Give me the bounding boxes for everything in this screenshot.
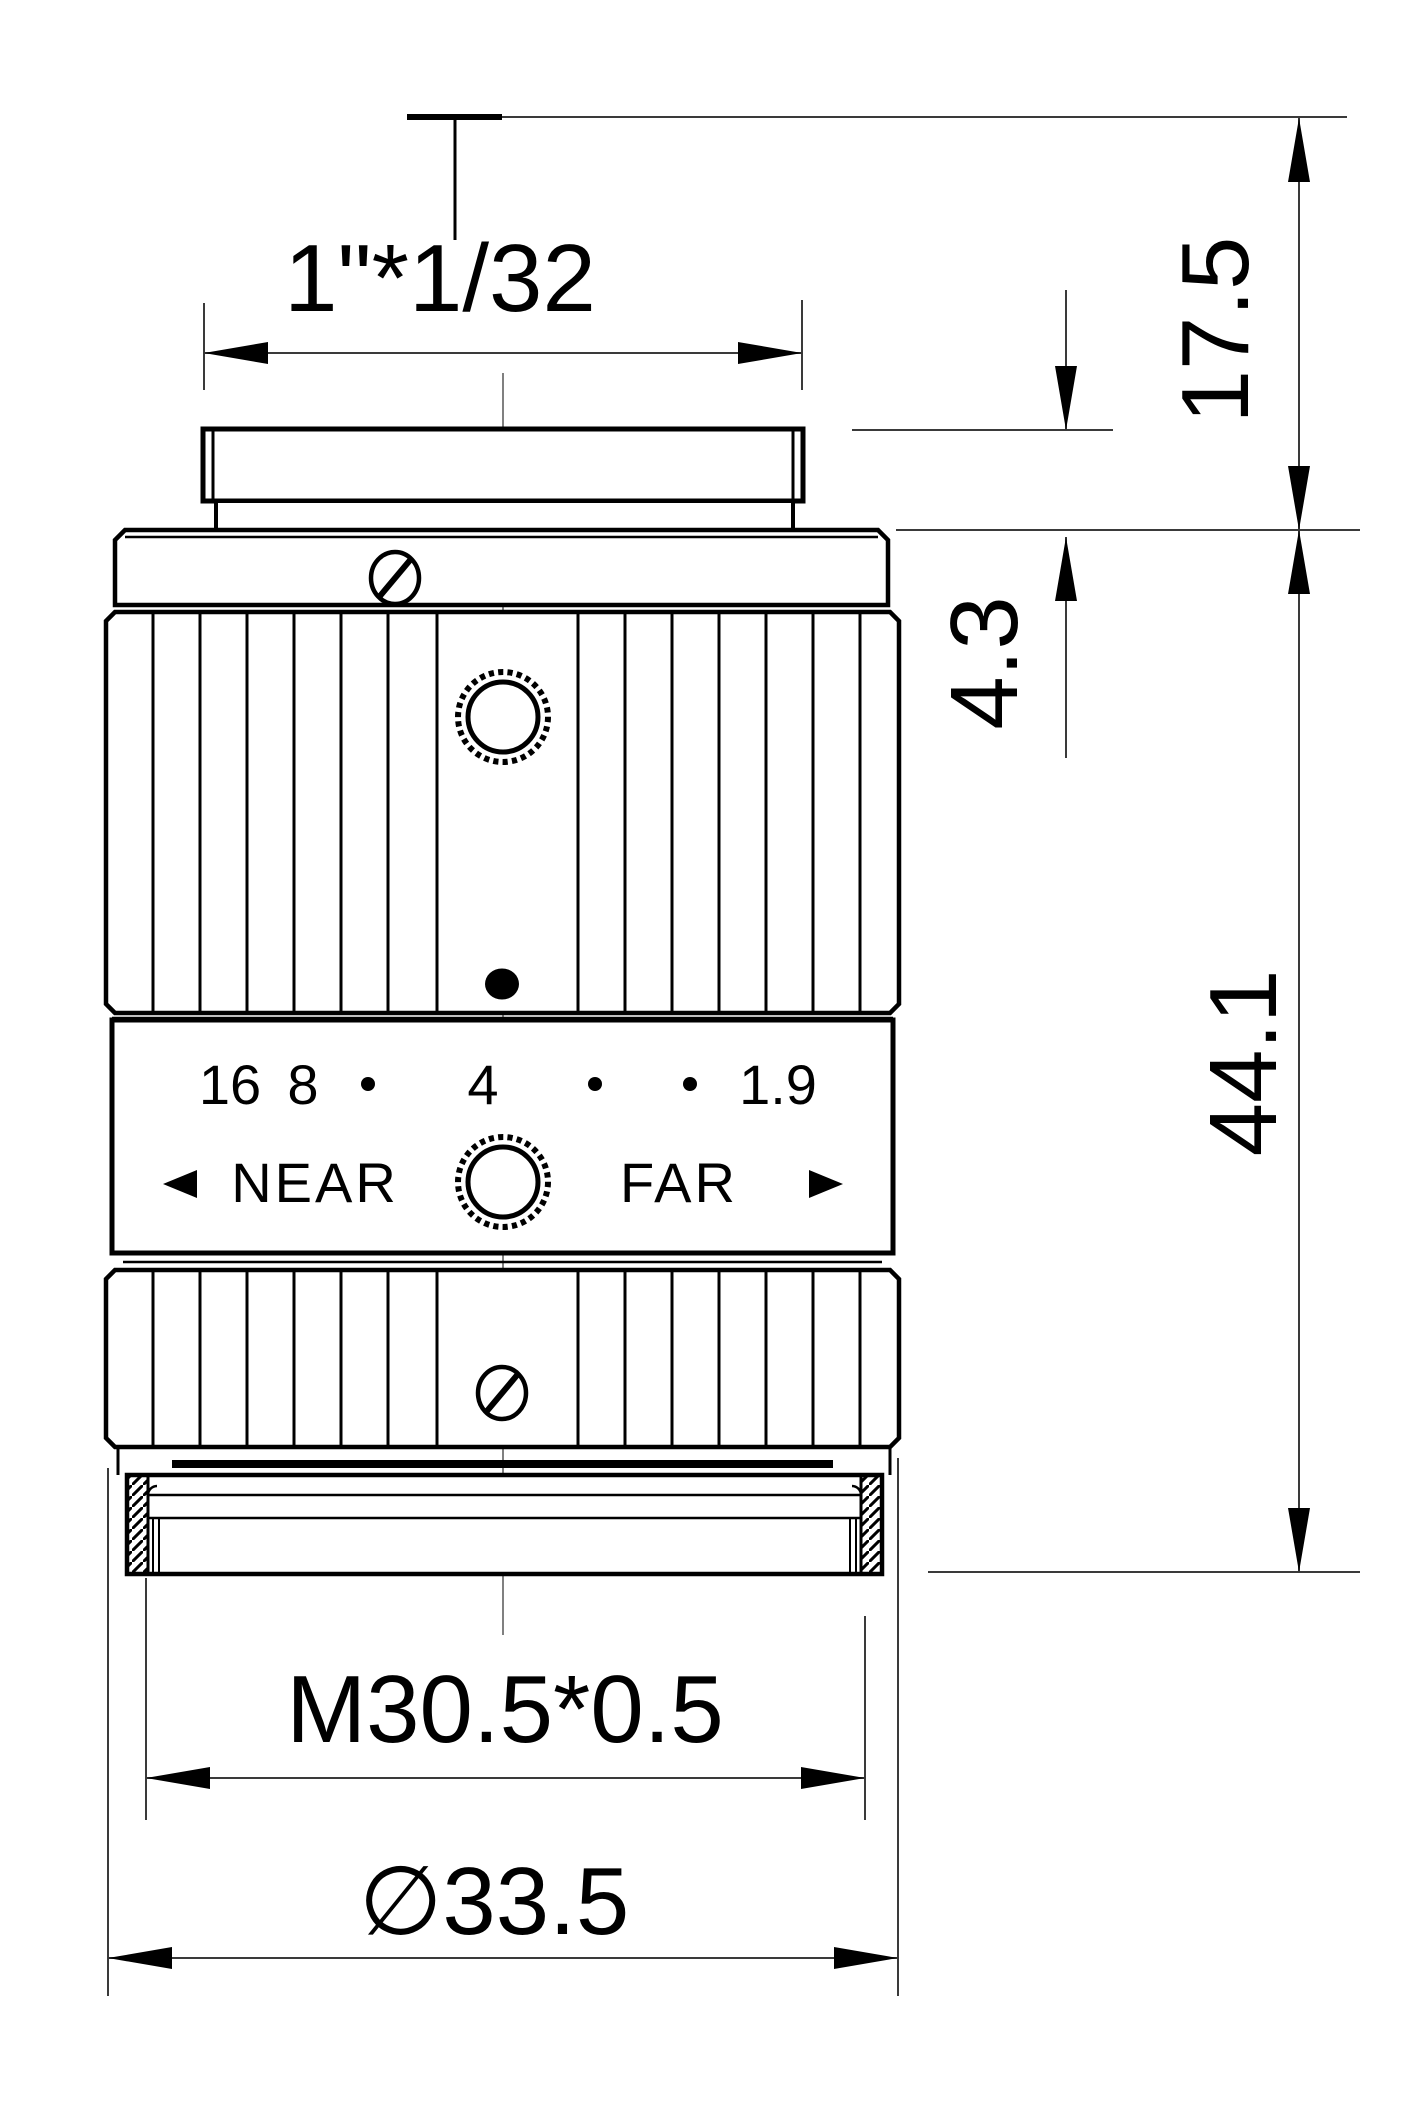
dimension-bottom-thread: M30.5*0.5: [146, 1578, 865, 1820]
dim-17-5-label: 17.5: [1162, 237, 1269, 424]
aperture-dot-icon: [361, 1077, 375, 1091]
dim-4-3-label: 4.3: [931, 596, 1038, 729]
bottom-thread-label: M30.5*0.5: [286, 1656, 724, 1763]
bottom-diameter-label: ∅33.5: [359, 1848, 629, 1955]
dim-44-1-label: 44.1: [1190, 970, 1297, 1157]
dimension-4-3: 4.3: [931, 290, 1077, 758]
top-datum-tick: [407, 117, 502, 240]
collar-set-screw-icon: [371, 552, 419, 604]
aperture-thumb-screw-icon: [458, 1137, 548, 1227]
bottom-set-screw-icon: [478, 1367, 526, 1419]
right-thread-hatch: [861, 1475, 882, 1574]
collar-ring: [115, 530, 888, 605]
thread-step: [216, 501, 793, 530]
near-label: NEAR: [231, 1151, 399, 1214]
index-dot: [485, 969, 519, 1000]
aperture-dot-icon: [683, 1077, 697, 1091]
aperture-mark-8: 8: [287, 1053, 318, 1116]
aperture-mark-16: 16: [199, 1053, 261, 1116]
mount-thread-section: [127, 1475, 882, 1574]
left-thread-hatch: [127, 1475, 148, 1574]
bottom-knurled-ring: [106, 1270, 899, 1447]
top-thread-cylinder: [203, 429, 803, 501]
aperture-dot-icon: [588, 1077, 602, 1091]
lens-technical-drawing: 16 8 4 1.9 NEAR FAR: [0, 0, 1428, 2114]
dimension-top-thread: 1"*1/32: [204, 225, 802, 390]
aperture-scale-ring: 16 8 4 1.9 NEAR FAR: [112, 1020, 893, 1253]
focus-knurled-ring: [106, 612, 899, 1013]
top-thread-label: 1"*1/32: [284, 225, 596, 332]
aperture-mark-1-9: 1.9: [739, 1053, 817, 1116]
focus-thumb-screw-icon: [458, 672, 548, 762]
far-label: FAR: [620, 1151, 738, 1214]
aperture-mark-4: 4: [467, 1053, 498, 1116]
drawing-canvas: 16 8 4 1.9 NEAR FAR: [0, 0, 1428, 2114]
dimension-17-5-and-44-1: 17.5 44.1: [1162, 118, 1310, 1572]
